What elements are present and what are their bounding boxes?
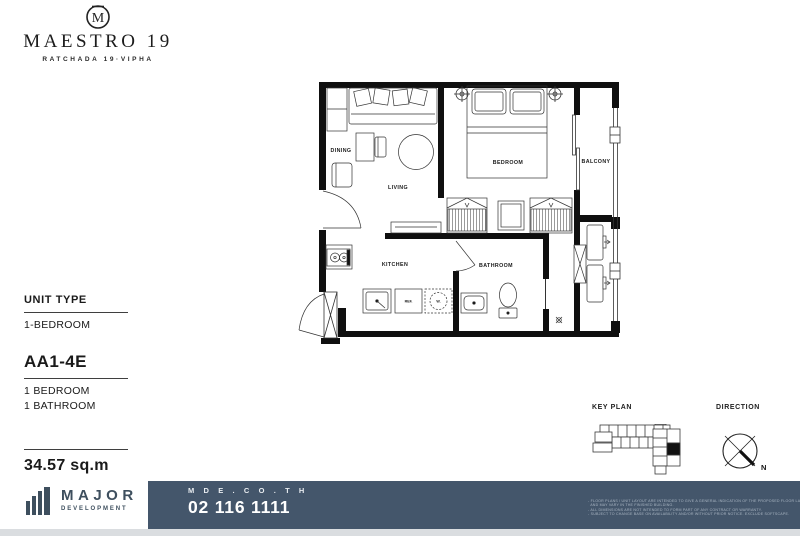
floor-plan: DINING LIVING BEDROOM BALCONY KITCHEN BA…: [295, 75, 645, 350]
entrance-door: [299, 292, 337, 338]
footer-strip: [0, 529, 800, 536]
key-plan: [592, 424, 692, 482]
brand-subtitle: RATCHADA 19·VIPHA: [18, 56, 178, 63]
disclaimer-line: - SUBJECT TO CHANGE BASE ON AVAILABILITY…: [588, 512, 796, 516]
room-label-balcony: BALCONY: [582, 159, 611, 165]
wardrobes: [447, 198, 572, 233]
living-furniture: [327, 88, 441, 233]
unit-area: 34.57 sq.m: [24, 457, 129, 475]
balcony-sliding-door: [573, 115, 580, 190]
unit-bathroom-count: 1 BATHROOM: [24, 400, 129, 412]
room-label-dining: DINING: [331, 148, 352, 154]
unit-type-label: UNIT TYPE: [24, 294, 129, 306]
unit-code: AA1-4E: [24, 352, 129, 372]
divider: [24, 312, 128, 313]
compass-north-label: N: [761, 463, 766, 472]
label-washer: W.: [436, 300, 440, 304]
unit-info-panel: UNIT TYPE 1-BEDROOM AA1-4E 1 BEDROOM 1 B…: [24, 294, 129, 475]
brand-crest-letter: M: [92, 11, 105, 26]
key-plan-label: KEY PLAN: [592, 404, 632, 411]
developer-logo: MAJOR DEVELOPMENT: [26, 487, 138, 517]
unit-bedroom-count: 1 BEDROOM: [24, 385, 129, 397]
brand-header: M MAESTRO 19 RATCHADA 19·VIPHA: [18, 2, 178, 63]
disclaimer-block: - FLOOR PLANS / UNIT LAYOUT ARE INTENDED…: [588, 499, 796, 516]
room-label-bathroom: BATHROOM: [479, 263, 513, 269]
unit-type-value: 1-BEDROOM: [24, 319, 129, 331]
developer-name: MAJOR: [61, 487, 138, 504]
bathroom-door: [456, 241, 546, 309]
key-plan-highlight: [667, 443, 680, 455]
direction-label: DIRECTION: [716, 404, 760, 411]
developer-logo-icon: [26, 487, 52, 517]
room-label-kitchen: KITCHEN: [382, 262, 408, 268]
kitchen-fixtures: [326, 245, 452, 313]
room-label-living: LIVING: [388, 185, 408, 191]
label-refrigerator: REF.: [405, 300, 413, 304]
living-door: [323, 191, 361, 228]
divider: [24, 378, 128, 379]
footer-contact: M D E . C O . T H 02 116 1111: [188, 486, 308, 518]
developer-subtitle: DEVELOPMENT: [61, 506, 138, 512]
phone-number: 02 116 1111: [188, 497, 308, 518]
compass-icon: N: [713, 430, 783, 478]
divider: [24, 449, 128, 450]
room-label-bedroom: BEDROOM: [493, 160, 524, 166]
website-text: M D E . C O . T H: [188, 486, 308, 495]
balcony-railing: [610, 108, 620, 321]
brand-name: MAESTRO 19: [18, 31, 178, 53]
brand-crest-icon: M: [83, 2, 113, 30]
